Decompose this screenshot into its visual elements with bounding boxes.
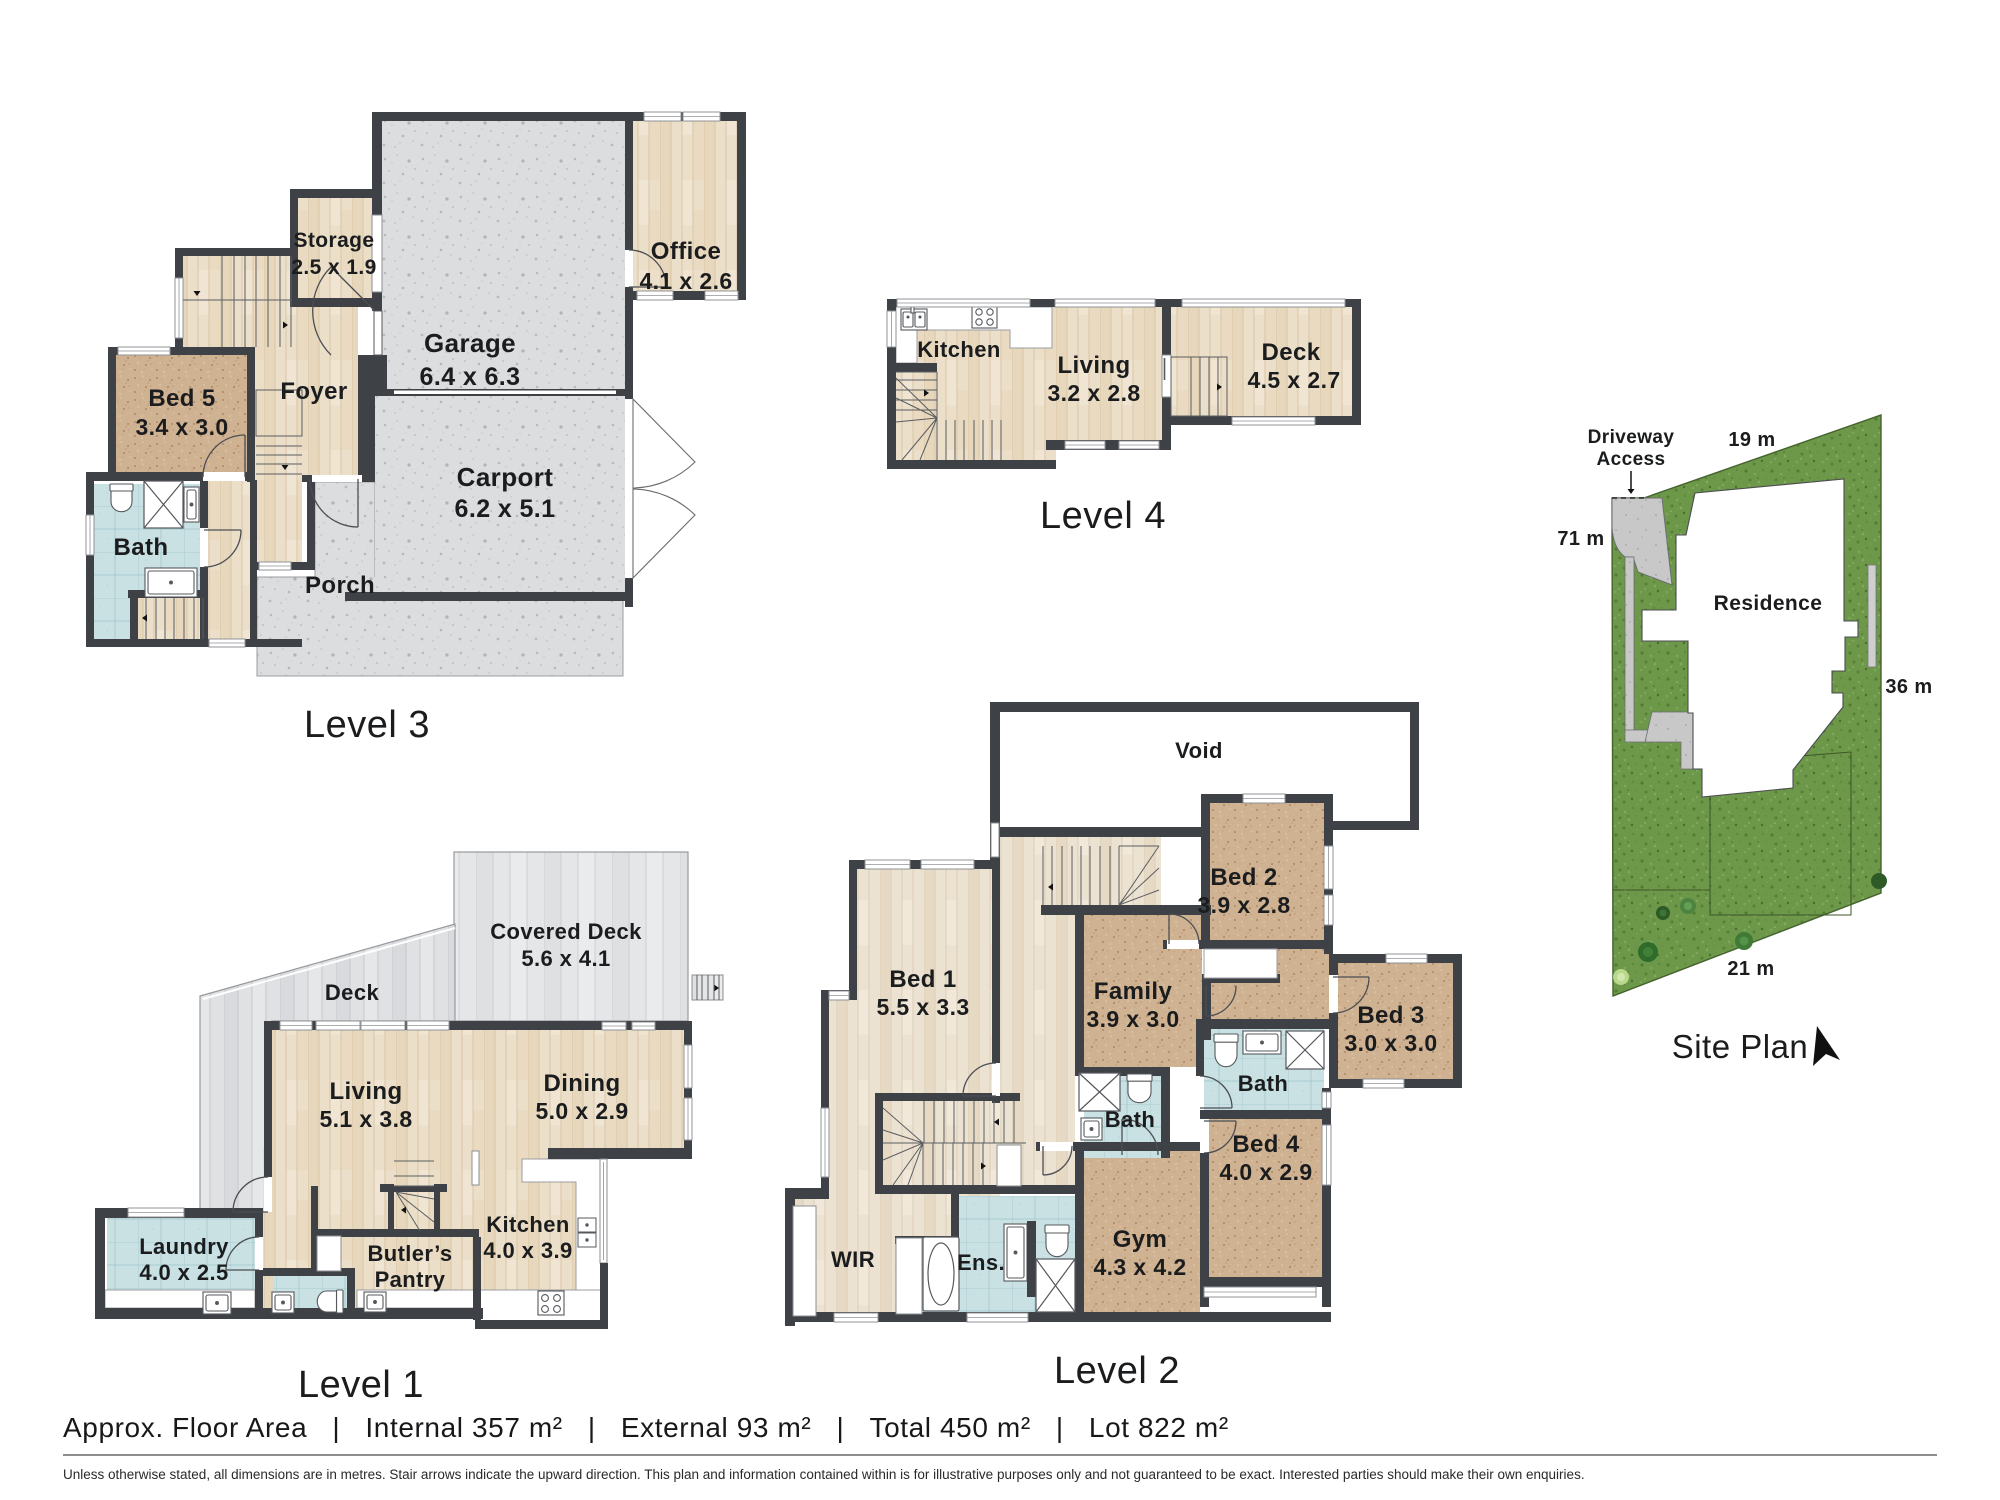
svg-text:Bath: Bath	[114, 534, 169, 561]
svg-text:4.0 x 3.9: 4.0 x 3.9	[483, 1238, 572, 1263]
svg-text:Ens.: Ens.	[957, 1250, 1005, 1275]
svg-text:Office: Office	[651, 238, 721, 265]
svg-text:Garage: Garage	[424, 328, 516, 358]
svg-text:Foyer: Foyer	[280, 378, 347, 405]
svg-text:Level 2: Level 2	[1054, 1350, 1180, 1392]
svg-text:Bath: Bath	[1105, 1107, 1156, 1132]
svg-text:3.4 x 3.0: 3.4 x 3.0	[135, 414, 228, 440]
svg-text:19 m: 19 m	[1728, 429, 1775, 451]
svg-text:Approx. Floor Area | Inter: Approx. Floor Area | Internal 357 m² | E…	[63, 1412, 1229, 1443]
svg-text:5.5 x 3.3: 5.5 x 3.3	[876, 994, 969, 1020]
svg-text:Deck: Deck	[325, 980, 380, 1005]
svg-text:Butler’s: Butler’s	[367, 1241, 452, 1266]
svg-text:Level 3: Level 3	[304, 704, 430, 746]
svg-text:5.1 x 3.8: 5.1 x 3.8	[319, 1106, 412, 1132]
svg-text:Bed 2: Bed 2	[1210, 864, 1277, 891]
svg-text:3.2 x 2.8: 3.2 x 2.8	[1047, 380, 1140, 406]
svg-text:5.6 x 4.1: 5.6 x 4.1	[521, 946, 610, 971]
svg-text:5.0 x 2.9: 5.0 x 2.9	[535, 1098, 628, 1124]
svg-text:Bed 3: Bed 3	[1357, 1002, 1424, 1029]
svg-text:3.9 x 3.0: 3.9 x 3.0	[1086, 1006, 1179, 1032]
svg-text:3.9 x 2.8: 3.9 x 2.8	[1197, 892, 1290, 918]
svg-text:Porch: Porch	[305, 572, 375, 599]
svg-text:Bed 1: Bed 1	[889, 966, 956, 993]
svg-text:4.0 x 2.5: 4.0 x 2.5	[139, 1260, 228, 1285]
svg-text:Bed 4: Bed 4	[1232, 1131, 1300, 1158]
svg-text:Void: Void	[1175, 738, 1223, 763]
svg-text:Living: Living	[1057, 352, 1130, 379]
svg-text:36 m: 36 m	[1885, 676, 1932, 698]
svg-text:Carport: Carport	[457, 462, 554, 492]
svg-text:4.1 x 2.6: 4.1 x 2.6	[639, 268, 732, 294]
svg-text:Covered Deck: Covered Deck	[490, 919, 642, 944]
svg-text:Pantry: Pantry	[375, 1267, 446, 1292]
svg-text:Laundry: Laundry	[139, 1234, 229, 1259]
svg-text:6.4 x 6.3: 6.4 x 6.3	[420, 363, 521, 391]
svg-text:3.0 x 3.0: 3.0 x 3.0	[1344, 1030, 1437, 1056]
svg-text:Dining: Dining	[543, 1070, 620, 1097]
svg-text:Access: Access	[1597, 449, 1666, 470]
svg-text:Level 4: Level 4	[1040, 495, 1166, 537]
svg-text:6.2 x 5.1: 6.2 x 5.1	[455, 495, 556, 523]
svg-text:2.5 x 1.9: 2.5 x 1.9	[291, 256, 376, 279]
svg-text:21 m: 21 m	[1727, 958, 1774, 980]
svg-text:Driveway: Driveway	[1588, 427, 1675, 448]
svg-text:Residence: Residence	[1714, 592, 1823, 615]
svg-text:Deck: Deck	[1262, 339, 1321, 366]
svg-text:Kitchen: Kitchen	[486, 1212, 569, 1237]
svg-text:Gym: Gym	[1113, 1226, 1168, 1253]
svg-text:Site Plan: Site Plan	[1672, 1028, 1809, 1065]
svg-text:4.3 x 4.2: 4.3 x 4.2	[1093, 1254, 1186, 1280]
svg-text:Level 1: Level 1	[298, 1364, 424, 1406]
svg-text:71 m: 71 m	[1557, 528, 1604, 550]
svg-text:WIR: WIR	[831, 1247, 875, 1272]
svg-text:4.5 x 2.7: 4.5 x 2.7	[1247, 367, 1340, 393]
svg-text:Unless otherwise stated, all d: Unless otherwise stated, all dimensions …	[63, 1467, 1585, 1482]
svg-text:Kitchen: Kitchen	[917, 337, 1000, 362]
svg-text:Family: Family	[1094, 978, 1173, 1005]
svg-text:Living: Living	[329, 1078, 402, 1105]
svg-text:Storage: Storage	[294, 229, 375, 252]
svg-text:Bed 5: Bed 5	[148, 385, 215, 412]
svg-text:Bath: Bath	[1238, 1071, 1289, 1096]
svg-text:4.0 x 2.9: 4.0 x 2.9	[1219, 1159, 1312, 1185]
